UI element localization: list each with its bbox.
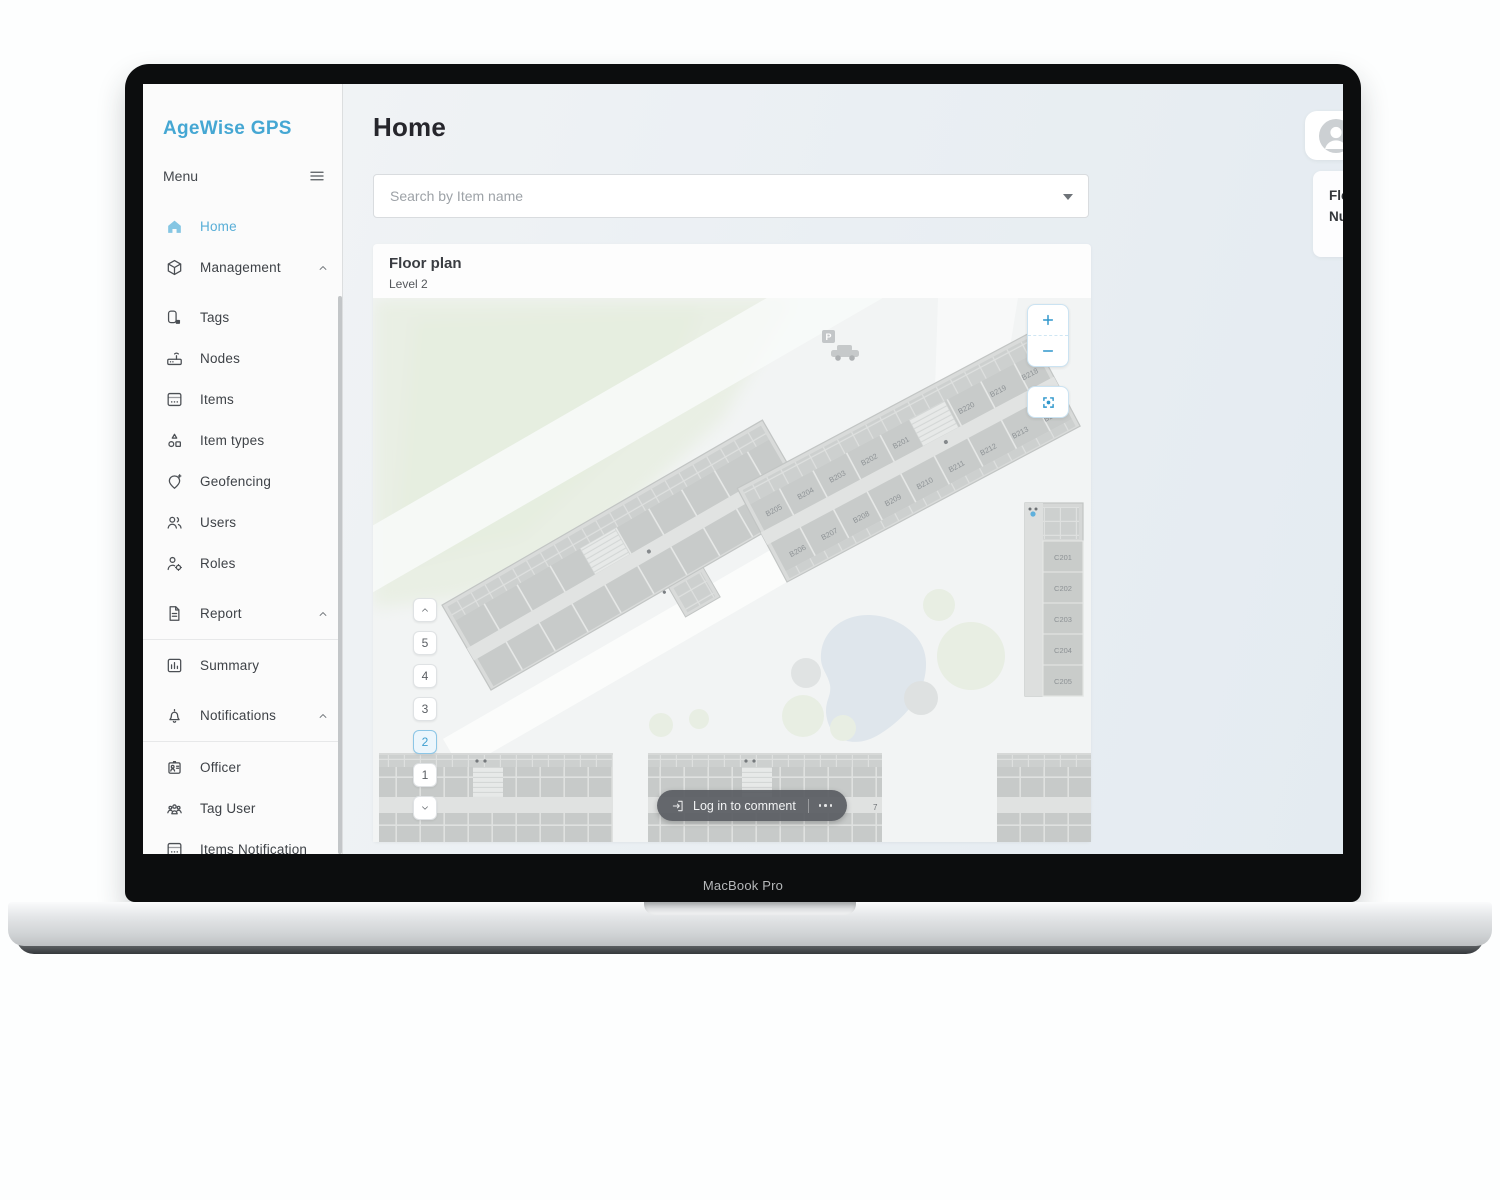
sidebar: AgeWise GPS Menu HomeManagementTagsNodes… (143, 84, 343, 854)
login-icon (671, 799, 685, 813)
sidebar-item-label: Report (200, 606, 316, 621)
sidebar-item-geofencing[interactable]: Geofencing (143, 461, 342, 502)
avatar (1319, 119, 1343, 153)
chevron-up-icon[interactable] (316, 709, 330, 723)
sidebar-item-summary[interactable]: Summary (143, 645, 342, 686)
sidebar-item-label: Summary (200, 658, 330, 673)
sidebar-item-label: Tag User (200, 801, 330, 816)
level-button-5[interactable]: 5 (413, 631, 437, 655)
items-icon (165, 390, 184, 409)
device-label: MacBook Pro (125, 878, 1361, 893)
sidebar-item-items-notification[interactable]: Items Notification (143, 829, 342, 854)
level-selector: 54321 (413, 598, 437, 820)
floorplan-map[interactable]: P (373, 298, 1091, 842)
tag-user-icon (165, 799, 184, 818)
sidebar-item-items[interactable]: Items (143, 379, 342, 420)
sidebar-menu: HomeManagementTagsNodesItemsItem typesGe… (143, 206, 342, 854)
main-content: Home Floor plan Level 2 (343, 84, 1343, 854)
floorplan-header: Floor plan Level 2 (373, 244, 1091, 291)
sidebar-item-label: Nodes (200, 351, 330, 366)
sidebar-item-label: Roles (200, 556, 330, 571)
svg-text:P: P (825, 332, 831, 342)
app-window: AgeWise GPS Menu HomeManagementTagsNodes… (143, 84, 1343, 854)
app-logo: AgeWise GPS (163, 118, 342, 140)
chevron-up-icon[interactable] (316, 261, 330, 275)
tag-icon (165, 308, 184, 327)
bell-icon (165, 706, 184, 725)
macbook-base (8, 902, 1492, 946)
report-icon (165, 604, 184, 623)
focus-icon (1040, 394, 1057, 411)
page-background: AgeWise GPS Menu HomeManagementTagsNodes… (0, 0, 1500, 1200)
menu-header: Menu (163, 167, 326, 185)
sidebar-item-label: Officer (200, 760, 330, 775)
sidebar-divider (143, 639, 342, 640)
home-icon (165, 217, 184, 236)
roles-icon (165, 554, 184, 573)
sidebar-divider (143, 741, 342, 742)
floorplan-level-subtitle: Level 2 (389, 277, 1075, 291)
level-button-1[interactable]: 1 (413, 763, 437, 787)
sidebar-item-notifications[interactable]: Notifications (143, 695, 342, 736)
summary-icon (165, 656, 184, 675)
building-c: C201 C202 C203 C204 C205 (1025, 503, 1083, 696)
recenter-button[interactable] (1027, 386, 1069, 418)
items-notification-icon (165, 840, 184, 854)
sidebar-item-management[interactable]: Management (143, 247, 342, 288)
login-to-comment-button[interactable]: Log in to comment (657, 790, 847, 821)
sidebar-item-tag-user[interactable]: Tag User (143, 788, 342, 829)
item-types-icon (165, 431, 184, 450)
pill-divider (808, 799, 809, 813)
sidebar-item-label: Geofencing (200, 474, 330, 489)
zoom-controls (1027, 304, 1069, 367)
dropdown-caret-icon[interactable] (1063, 194, 1073, 200)
sidebar-item-officer[interactable]: Officer (143, 747, 342, 788)
floor-info-card: Floor level: Level 2 Number of tags: 0 t… (1313, 171, 1343, 257)
geofence-icon (165, 472, 184, 491)
svg-text:C201: C201 (1054, 553, 1072, 562)
sidebar-item-roles[interactable]: Roles (143, 543, 342, 584)
svg-text:C202: C202 (1054, 584, 1072, 593)
sidebar-item-label: Home (200, 219, 330, 234)
sidebar-item-label: Item types (200, 433, 330, 448)
level-up-button[interactable] (413, 598, 437, 622)
menu-label: Menu (163, 168, 198, 184)
level-button-2[interactable]: 2 (413, 730, 437, 754)
sidebar-item-label: Management (200, 260, 316, 275)
sidebar-scrollbar[interactable] (338, 296, 342, 854)
package-icon (165, 258, 184, 277)
sidebar-item-nodes[interactable]: Nodes (143, 338, 342, 379)
sidebar-item-home[interactable]: Home (143, 206, 342, 247)
chevron-up-icon[interactable] (316, 607, 330, 621)
login-to-comment-label: Log in to comment (693, 799, 796, 813)
floorplan-title: Floor plan (389, 255, 1075, 272)
users-icon (165, 513, 184, 532)
tag-count-row: Number of tags: 0 tags (1329, 207, 1343, 228)
sidebar-item-item-types[interactable]: Item types (143, 420, 342, 461)
floorplan-card: Floor plan Level 2 (373, 244, 1091, 842)
zoom-out-button[interactable] (1028, 335, 1068, 366)
macbook-screen: AgeWise GPS Menu HomeManagementTagsNodes… (125, 64, 1361, 902)
floor-level-row: Floor level: Level 2 (1329, 186, 1343, 207)
sidebar-item-label: Users (200, 515, 330, 530)
map-small-label: 7 (873, 803, 878, 812)
macbook-notch (644, 902, 856, 915)
router-icon (165, 349, 184, 368)
page-title: Home (373, 112, 446, 143)
svg-text:C205: C205 (1054, 677, 1072, 686)
user-menu[interactable]: himasara98 admin (1305, 111, 1343, 160)
sidebar-item-label: Items (200, 392, 330, 407)
level-button-3[interactable]: 3 (413, 697, 437, 721)
sidebar-item-label: Notifications (200, 708, 316, 723)
badge-icon (165, 758, 184, 777)
zoom-in-button[interactable] (1028, 305, 1068, 335)
sidebar-item-users[interactable]: Users (143, 502, 342, 543)
search-input[interactable] (374, 175, 1088, 217)
svg-text:C204: C204 (1054, 646, 1072, 655)
level-down-button[interactable] (413, 796, 437, 820)
search-box[interactable] (373, 174, 1089, 218)
sidebar-item-label: Items Notification (200, 842, 330, 854)
svg-text:C203: C203 (1054, 615, 1072, 624)
level-button-4[interactable]: 4 (413, 664, 437, 688)
more-options-icon[interactable] (817, 804, 835, 807)
sidebar-item-tags[interactable]: Tags (143, 297, 342, 338)
hamburger-icon[interactable] (308, 167, 326, 185)
sidebar-item-label: Tags (200, 310, 330, 325)
sidebar-item-report[interactable]: Report (143, 593, 342, 634)
floorplan-svg: P (373, 298, 1091, 842)
